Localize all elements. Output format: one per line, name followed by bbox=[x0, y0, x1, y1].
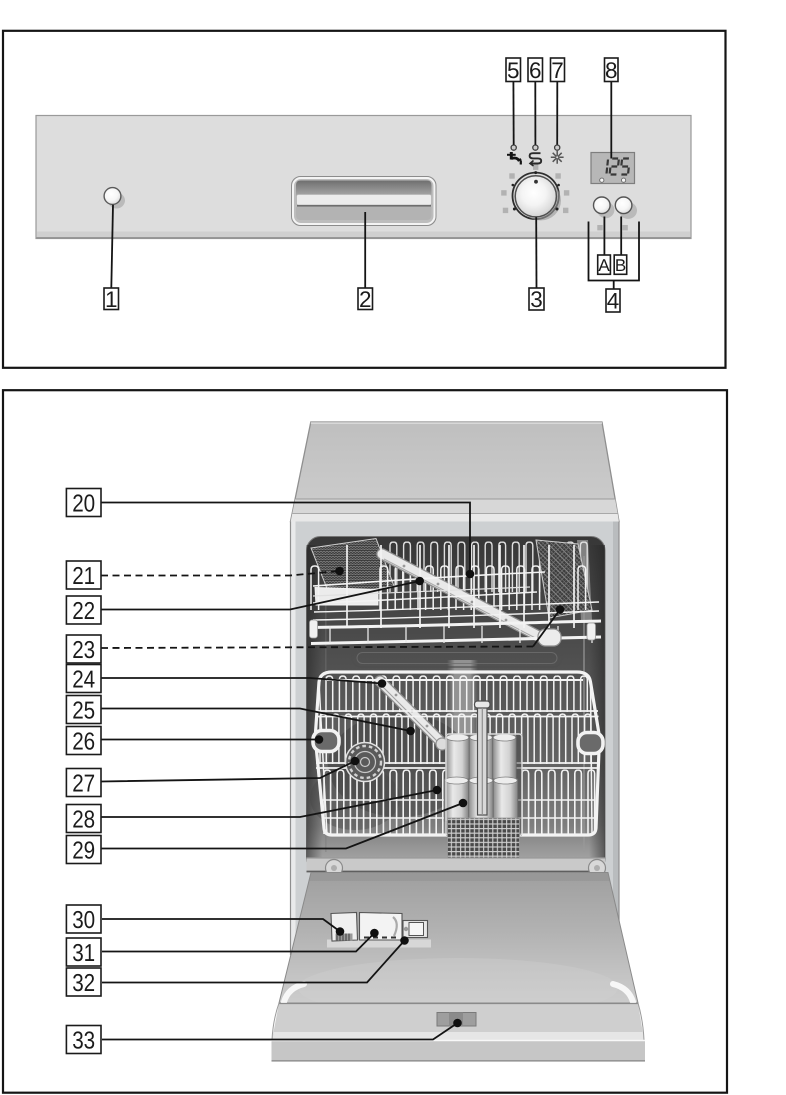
svg-text:1: 1 bbox=[105, 287, 118, 312]
svg-text:4: 4 bbox=[607, 289, 620, 314]
svg-text:24: 24 bbox=[72, 666, 95, 693]
svg-text:3: 3 bbox=[530, 287, 543, 312]
svg-text:22: 22 bbox=[72, 598, 95, 625]
svg-text:25: 25 bbox=[72, 697, 95, 724]
svg-text:6: 6 bbox=[529, 58, 542, 83]
svg-text:29: 29 bbox=[72, 837, 95, 864]
svg-text:8: 8 bbox=[605, 58, 618, 83]
svg-text:21: 21 bbox=[72, 563, 95, 590]
svg-text:32: 32 bbox=[72, 970, 95, 997]
svg-text:30: 30 bbox=[72, 907, 95, 934]
svg-text:B: B bbox=[615, 256, 626, 275]
svg-text:33: 33 bbox=[72, 1027, 95, 1054]
svg-text:7: 7 bbox=[551, 58, 564, 83]
svg-text:A: A bbox=[598, 256, 610, 275]
svg-text:23: 23 bbox=[72, 637, 95, 664]
svg-text:5: 5 bbox=[507, 58, 520, 83]
svg-text:28: 28 bbox=[72, 806, 95, 833]
svg-text:27: 27 bbox=[72, 770, 95, 797]
svg-text:2: 2 bbox=[359, 287, 372, 312]
svg-text:26: 26 bbox=[72, 728, 95, 755]
svg-text:31: 31 bbox=[72, 940, 95, 967]
svg-text:20: 20 bbox=[72, 490, 95, 517]
